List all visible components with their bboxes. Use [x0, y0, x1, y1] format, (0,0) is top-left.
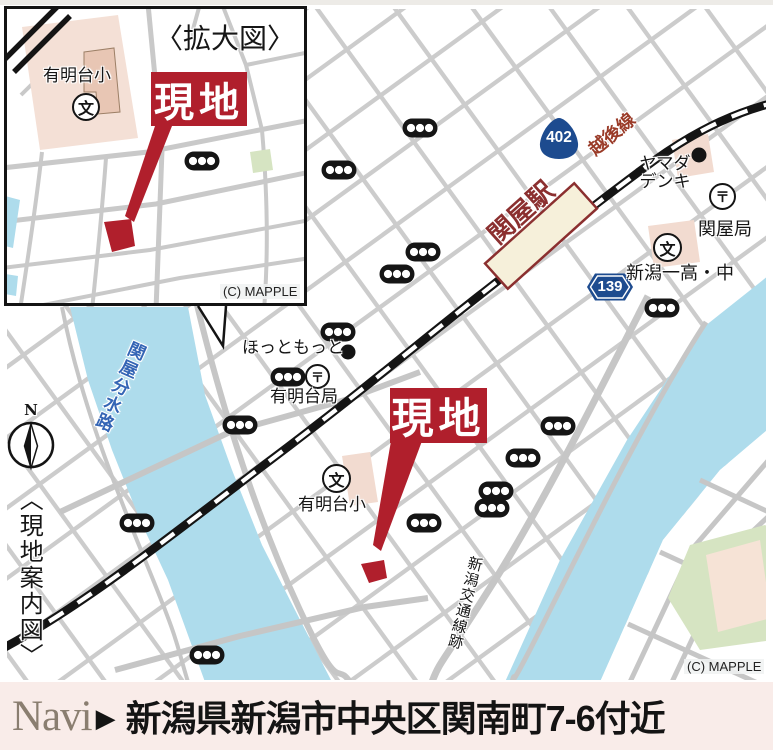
site-address: 新潟県新潟市中央区関南町7-6付近 — [126, 690, 665, 742]
hotto-motto-label: ほっともっと — [242, 340, 344, 358]
navi-arrow-icon: ▶ — [96, 703, 116, 734]
post-office-icon: 〒 — [709, 183, 736, 210]
compass-north-label: N — [21, 403, 41, 419]
route-shield-139-number: 139 — [590, 279, 630, 295]
inset-title: 〈拡大図〉 — [152, 24, 298, 53]
navi-label: Navi — [12, 692, 92, 741]
address-footer: Navi ▶ 新潟県新潟市中央区関南町7-6付近 — [0, 682, 773, 750]
yamada-denki-label-line2: デンキ — [635, 174, 695, 192]
copyright-main: (C) MAPPLE — [684, 659, 764, 674]
route-shield-402-number: 402 — [539, 130, 579, 146]
copyright-inset: (C) MAPPLE — [220, 284, 300, 299]
inset-callout-tail — [195, 306, 229, 350]
school-icon: 文 — [653, 233, 682, 262]
inset-school-label: 有明台小 — [42, 68, 112, 86]
sekiya-post-office-label: 関屋局 — [698, 221, 752, 240]
inset-park-green — [250, 149, 273, 173]
school-icon: 文 — [72, 93, 100, 121]
compass-rose — [9, 423, 53, 468]
school-icon: 文 — [322, 464, 351, 493]
niigata-first-hs-label: 新潟一高・中 — [626, 265, 734, 284]
inset-traffic-light — [185, 152, 220, 171]
top-edge-strip — [0, 0, 773, 5]
post-office-icon: 〒 — [305, 364, 330, 389]
site-banner-inset: 現地 — [151, 72, 247, 126]
ariakedai-post-office-label: 有明台局 — [270, 389, 338, 407]
map-screenshot: 関屋駅 越後線 402 139 ヤマダ デンキ 〒 関屋局 文 新潟一高・中 ほ… — [0, 0, 773, 750]
ariakedai-school-label: 有明台小 — [298, 497, 366, 515]
map-side-caption: 〈現地案内図〉 — [16, 487, 41, 669]
site-banner-main: 現地 — [390, 388, 487, 443]
